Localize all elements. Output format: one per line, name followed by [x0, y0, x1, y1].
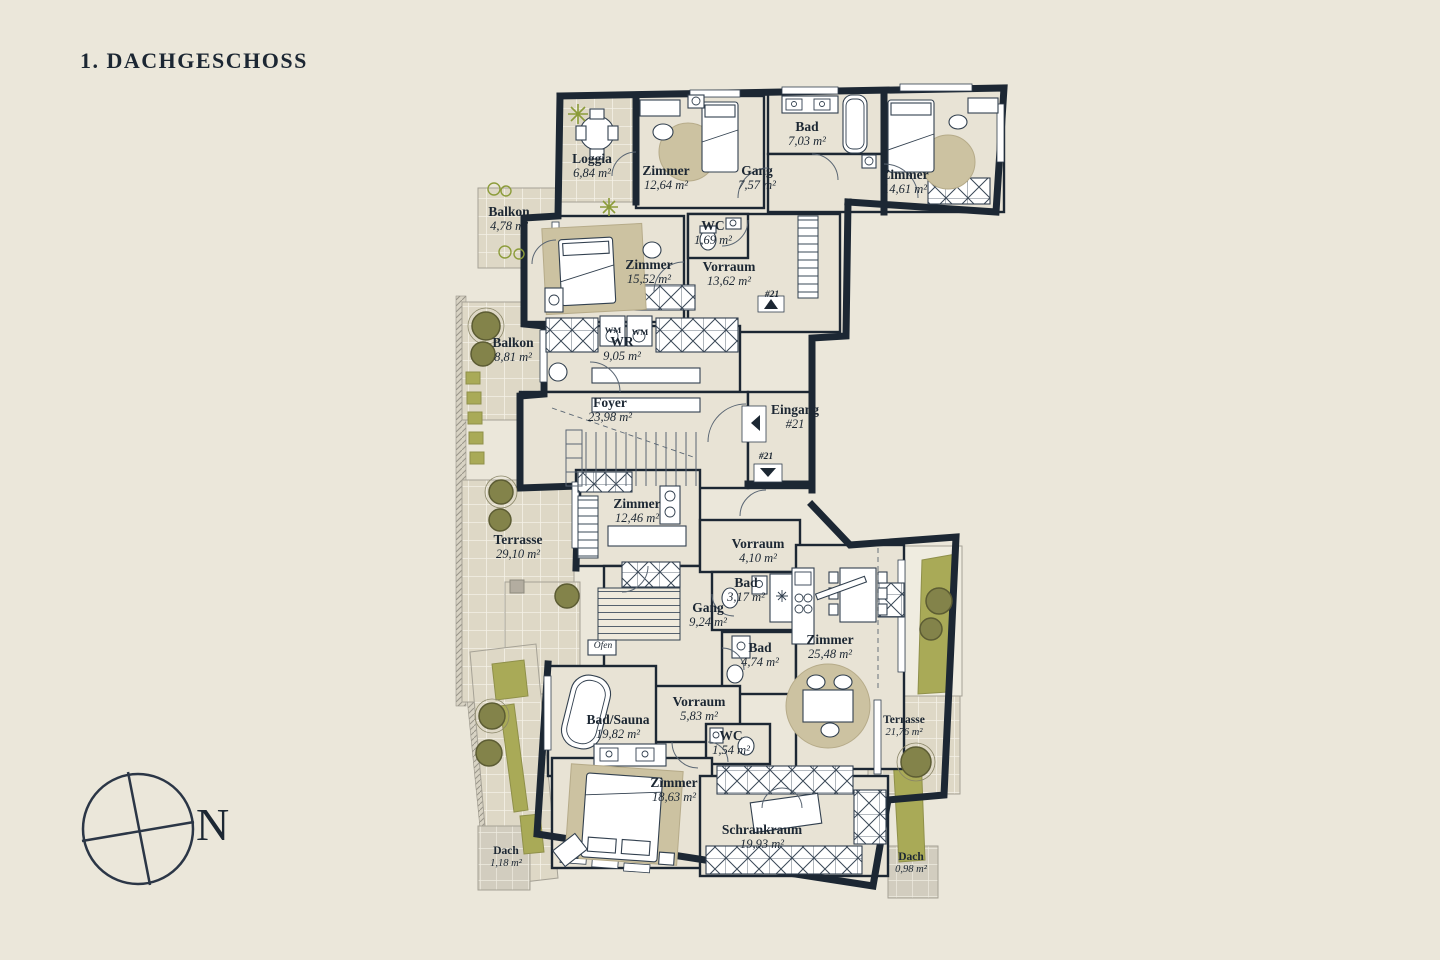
- window: [544, 676, 551, 750]
- window: [900, 84, 972, 91]
- sideboard: [592, 398, 700, 412]
- wardrobe: [717, 766, 853, 794]
- table: [608, 526, 686, 546]
- table: [803, 690, 853, 722]
- fireplace-column: [578, 496, 598, 558]
- oven: [588, 640, 616, 655]
- wardrobe: [854, 790, 886, 844]
- window: [874, 700, 881, 774]
- toilet: [738, 737, 754, 755]
- sauna-benches: [598, 588, 680, 640]
- wardrobe: [656, 318, 738, 352]
- compass-north-label: N: [196, 799, 229, 850]
- toilet: [727, 665, 743, 683]
- vorraum-410-floor: [700, 520, 800, 572]
- wardrobe: [706, 846, 862, 874]
- desk: [640, 100, 680, 116]
- washing-machine: [627, 316, 652, 346]
- stool: [653, 124, 673, 140]
- wardrobe: [546, 318, 598, 352]
- compass: N: [72, 762, 242, 902]
- sideboard: [592, 368, 700, 383]
- window: [782, 87, 838, 94]
- double-sink: [594, 744, 666, 766]
- desk: [968, 98, 998, 113]
- washing-machine: [600, 316, 625, 346]
- floorplan-page: 1. DACHGESCHOSS: [0, 0, 1440, 960]
- toilet: [722, 588, 738, 608]
- wardrobe: [622, 562, 680, 587]
- dining-table: [840, 568, 876, 622]
- shelf-column: [798, 216, 818, 298]
